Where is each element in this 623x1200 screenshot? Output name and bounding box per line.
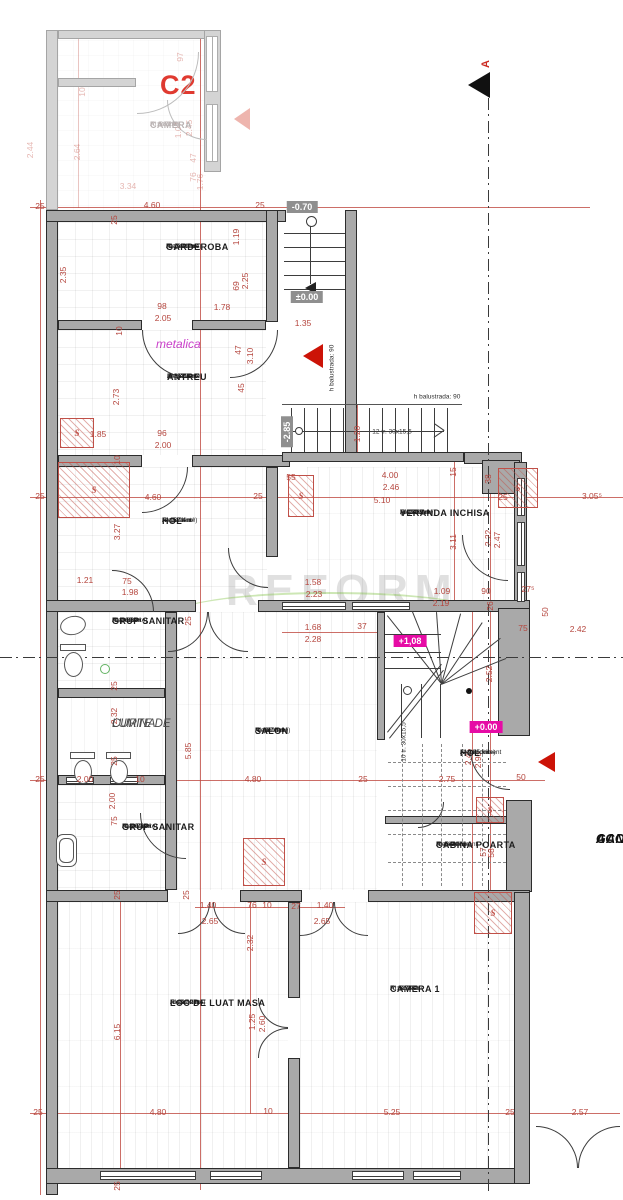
dim-label: 38 — [483, 474, 493, 483]
dim-label: 3.27 — [112, 524, 122, 541]
door-arc — [334, 902, 368, 936]
stair-step-line — [310, 226, 311, 284]
dim-label: 1.19 — [231, 229, 241, 246]
dim-label: 25 — [358, 774, 367, 784]
level-marker: -2.85 — [281, 417, 293, 448]
level-marker: +0.00 — [470, 721, 503, 733]
dim-label: 5.25 — [384, 1107, 401, 1117]
stair-step-line — [317, 408, 318, 452]
stair-step-line — [284, 233, 345, 234]
dim-label: 1.68 — [305, 622, 322, 632]
dim-label: 2.52 — [484, 666, 494, 683]
shaft: S — [474, 892, 512, 934]
dim-label: 10 — [135, 774, 144, 784]
dim-label: 5.10 — [374, 495, 391, 505]
room-info: F: gresie — [162, 516, 187, 525]
room-info: F: gresie — [166, 242, 191, 251]
dim-label: 2.57 — [572, 1107, 589, 1117]
dim-label: 97 — [175, 52, 185, 61]
stair-step-line — [440, 684, 441, 738]
dim-label: 2.05 — [155, 313, 172, 323]
stair-start-circle — [306, 216, 317, 227]
dim-label: 90 — [481, 586, 490, 596]
bathtub-inner — [59, 838, 74, 863]
room-info: F: parchet — [170, 998, 198, 1007]
room-info: F: gresie — [112, 616, 137, 625]
axis-line — [0, 657, 623, 658]
shaft: S — [58, 462, 130, 518]
dim-label: 4.80 — [150, 1107, 167, 1117]
dim-label: 25 — [181, 890, 191, 899]
newel-circle — [403, 686, 412, 695]
shaft: S — [498, 468, 538, 508]
dim-label: 4.00 — [382, 470, 399, 480]
dim-label: 2.65 — [314, 916, 331, 926]
dim-label: 2.65 — [202, 916, 219, 926]
wall — [288, 1058, 300, 1168]
dimension-line — [78, 30, 79, 208]
stair-dot — [466, 688, 472, 694]
dim-label: 76 — [247, 900, 256, 910]
dim-label: 2.00 — [107, 793, 117, 810]
door-arc — [140, 813, 186, 859]
stair-step-line — [434, 408, 435, 452]
stair-step-line — [304, 408, 305, 452]
room-info: F: parchet — [255, 726, 283, 735]
dim-label: 25 — [498, 492, 507, 502]
door-arc — [208, 612, 248, 652]
dim-label: 25 — [109, 756, 119, 765]
floor-hatch — [300, 902, 514, 1168]
dim-label: 1.40 — [317, 900, 334, 910]
wall-faded — [46, 30, 58, 210]
toilet — [64, 652, 83, 677]
dim-label: 25 — [253, 491, 262, 501]
door-arc — [228, 548, 268, 588]
dim-label: 26 — [485, 601, 495, 610]
dim-label: 4.80 — [245, 774, 262, 784]
dim-label: 2.60 — [257, 1016, 267, 1033]
dim-label: 1.35 — [295, 318, 312, 328]
dim-label: 1.85 — [90, 429, 107, 439]
room-info: F: microciment — [436, 840, 477, 849]
window-faded — [206, 104, 218, 162]
dim-label: 25 — [33, 1107, 42, 1117]
toilet-tank — [60, 644, 86, 651]
dim-label: 4.60 — [144, 200, 161, 210]
room-info: F: gresie — [167, 372, 192, 381]
stair-step-line — [389, 670, 444, 739]
wall — [192, 320, 266, 330]
wall — [377, 612, 385, 740]
stair-step-line — [421, 684, 422, 738]
window — [413, 1171, 461, 1180]
level-marker: ±0.00 — [291, 291, 323, 303]
projection-dash — [462, 744, 463, 886]
stair-step-line — [385, 668, 441, 669]
dimension-line — [200, 30, 201, 1190]
wall — [288, 902, 300, 998]
room-info: F: microciment — [460, 748, 501, 757]
floorplan-canvas: REFORM C2 metalica A SSSSSSS10972.442.64… — [0, 0, 623, 1200]
stair-step-line — [284, 261, 345, 262]
stair-step-line — [385, 652, 441, 653]
dim-label: 2.44 — [25, 142, 35, 159]
window — [282, 602, 346, 610]
window — [100, 1171, 196, 1180]
dim-label: 25 — [255, 200, 264, 210]
shaft-letter: S — [487, 805, 492, 815]
window — [352, 602, 410, 610]
dim-label: 2.00 — [77, 774, 94, 784]
dim-label: 1.20 — [352, 426, 362, 443]
level-marker: +1,08 — [394, 635, 427, 647]
stair-step-line — [282, 404, 462, 405]
dim-label: 2.25 — [240, 273, 250, 290]
dim-label: 75 — [518, 623, 527, 633]
stair-step-line — [292, 431, 444, 432]
dim-label: 2.19 — [433, 598, 450, 608]
shaft-letter: S — [298, 491, 303, 501]
door-arc — [142, 330, 190, 378]
dim-label: 1.40 — [200, 900, 217, 910]
dim-label: 25 — [109, 215, 119, 224]
wall — [266, 210, 278, 322]
dim-label: 1.58 — [305, 577, 322, 587]
dim-label: 10 — [262, 900, 271, 910]
wall — [514, 892, 530, 1184]
dim-label: 47 — [233, 345, 243, 354]
room-info: F: gresie — [122, 822, 147, 831]
dim-label: h balustrada: 90 — [414, 394, 461, 401]
dim-label: 25 — [35, 491, 44, 501]
red-triangle — [303, 344, 323, 368]
room-info: F: parchet — [390, 984, 418, 993]
dim-label: 1.21 — [77, 575, 94, 585]
dim-label: 45 — [236, 383, 246, 392]
section-marker-letter: A — [480, 60, 492, 68]
wall — [46, 210, 58, 1195]
dim-label: 2.00 — [155, 440, 172, 450]
dim-label: 2.47 — [492, 532, 502, 549]
dim-label: 1.98 — [122, 587, 139, 597]
wall-faded — [58, 78, 136, 87]
dim-label: 2.23 — [306, 589, 323, 599]
stair-step-line — [284, 247, 345, 248]
shaft-letter: S — [261, 857, 266, 867]
wall — [58, 320, 142, 330]
room-name: ACCES — [596, 832, 623, 846]
dimension-line — [30, 1113, 620, 1114]
dim-label: 4.60 — [145, 492, 162, 502]
dim-label: 10 — [263, 1106, 272, 1116]
dim-label: 10 — [114, 326, 124, 335]
wall — [46, 890, 168, 902]
dim-label: 1.76 — [195, 174, 205, 191]
dim-label: 25 — [183, 616, 193, 625]
stair-step-line — [441, 658, 506, 685]
stair-start-circle — [295, 427, 303, 435]
dim-label: 75 — [122, 576, 131, 586]
dim-label: 2.35 — [58, 267, 68, 284]
dimension-line — [282, 632, 382, 633]
dim-label: 6.15 — [112, 1024, 122, 1041]
stair-step-line — [421, 408, 422, 452]
dim-label: 37 — [357, 621, 366, 631]
dim-label: 96 — [157, 428, 166, 438]
shaft-letter: S — [91, 485, 96, 495]
dim-label: 3.11 — [448, 534, 458, 550]
dim-label: 2.64 — [72, 144, 82, 161]
dim-label: 2.32 — [245, 935, 255, 952]
dim-label: 10 tr. 30x15,5 — [401, 722, 408, 761]
dim-label: 50 — [540, 607, 550, 616]
faded-triangle — [234, 108, 250, 130]
dim-label: 98 — [157, 301, 166, 311]
wall — [192, 455, 290, 467]
dim-label: 25 — [109, 681, 119, 690]
door-arc — [258, 1028, 288, 1058]
dim-label: 3.34 — [120, 181, 137, 191]
dim-label: 47 — [188, 153, 198, 162]
dim-label: 2.28 — [305, 634, 322, 644]
wall — [266, 467, 278, 557]
stair-step-line — [387, 664, 442, 733]
wall — [282, 452, 464, 462]
dim-label: 25 — [35, 774, 44, 784]
window — [517, 522, 525, 566]
dim-label: 25 — [112, 890, 122, 899]
window-faded — [206, 36, 218, 92]
door-arc — [578, 1126, 620, 1168]
dim-label: 27⁵ — [522, 584, 535, 594]
room-info: F: parchet — [150, 120, 178, 129]
projection-dash — [441, 744, 442, 886]
section-line-A — [488, 75, 489, 1195]
projection-dash — [422, 744, 423, 886]
wall — [46, 210, 286, 222]
stair-step-line — [284, 275, 345, 276]
dim-label: 15 — [448, 467, 458, 476]
dim-label: 5.85 — [183, 743, 193, 760]
dim-label: 2.46 — [383, 482, 400, 492]
projection-dash — [402, 744, 403, 886]
dim-label: h balustrada: 90 — [329, 345, 336, 392]
dim-label: 10 — [77, 87, 87, 96]
shaft-letter: S — [515, 483, 520, 493]
window — [352, 1171, 404, 1180]
stair-step-line — [343, 408, 344, 452]
dim-label: 1.78 — [214, 302, 231, 312]
window — [210, 1171, 262, 1180]
stair-step-line — [369, 408, 370, 452]
wall-faded — [58, 30, 208, 39]
shaft: S — [243, 838, 285, 886]
room-info: F: parchet — [400, 508, 428, 517]
dim-label: 75 — [109, 816, 119, 825]
shaft-letter: S — [74, 428, 79, 438]
toilet-tank — [70, 752, 95, 759]
shaft-letter: S — [490, 908, 495, 918]
red-triangle — [538, 752, 555, 772]
dim-label: 50 — [516, 772, 525, 782]
section-marker-triangle — [468, 72, 490, 98]
dim-label: 25 — [505, 1107, 514, 1117]
dim-label: 25 — [35, 201, 44, 211]
dim-label: 55 — [286, 472, 295, 482]
green-ring — [100, 664, 110, 674]
stair-step-line — [447, 408, 448, 452]
dim-label: 2.73 — [111, 389, 121, 406]
dim-label: 3.10 — [245, 348, 255, 365]
dim-label: 12 tr. 30x15,5 — [372, 429, 411, 436]
level-marker: -0.70 — [287, 201, 318, 213]
room-name: LUMINA — [112, 718, 155, 731]
door-arc — [142, 467, 188, 513]
door-arc — [536, 1126, 578, 1168]
dim-label: 1.25 — [247, 1014, 257, 1031]
dim-label: 27 — [291, 901, 300, 911]
dim-label: 10 — [112, 455, 122, 464]
dim-label: 3.05⁵ — [582, 491, 602, 501]
dim-label: 2.42 — [570, 624, 587, 634]
stair-step-line — [330, 408, 331, 452]
dimension-line — [40, 200, 41, 1195]
dim-label: 2.75 — [439, 774, 456, 784]
dim-label: 1.09 — [434, 586, 451, 596]
dim-label: 25 — [112, 1181, 122, 1190]
shaft: S — [476, 797, 504, 823]
